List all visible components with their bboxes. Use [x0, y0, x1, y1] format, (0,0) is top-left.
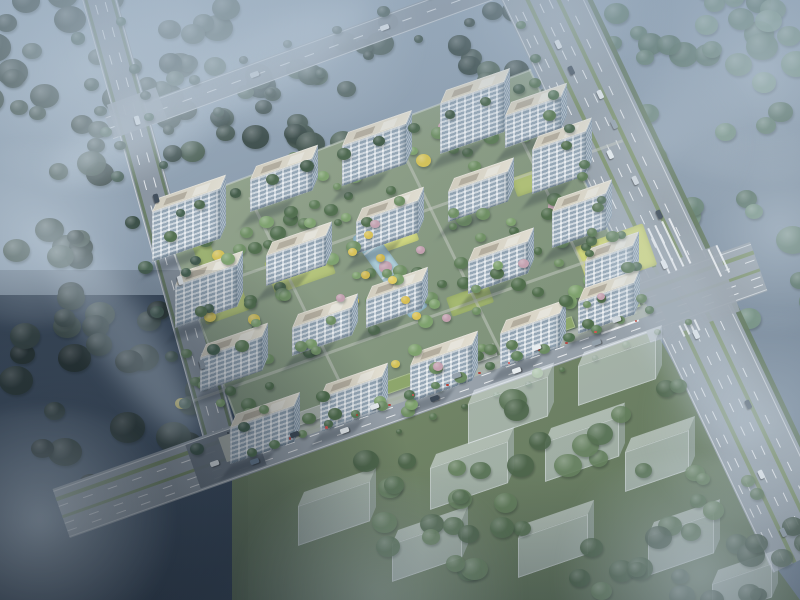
aerial-residential-complex-rendering: [0, 0, 800, 600]
color-grade: [0, 0, 800, 600]
